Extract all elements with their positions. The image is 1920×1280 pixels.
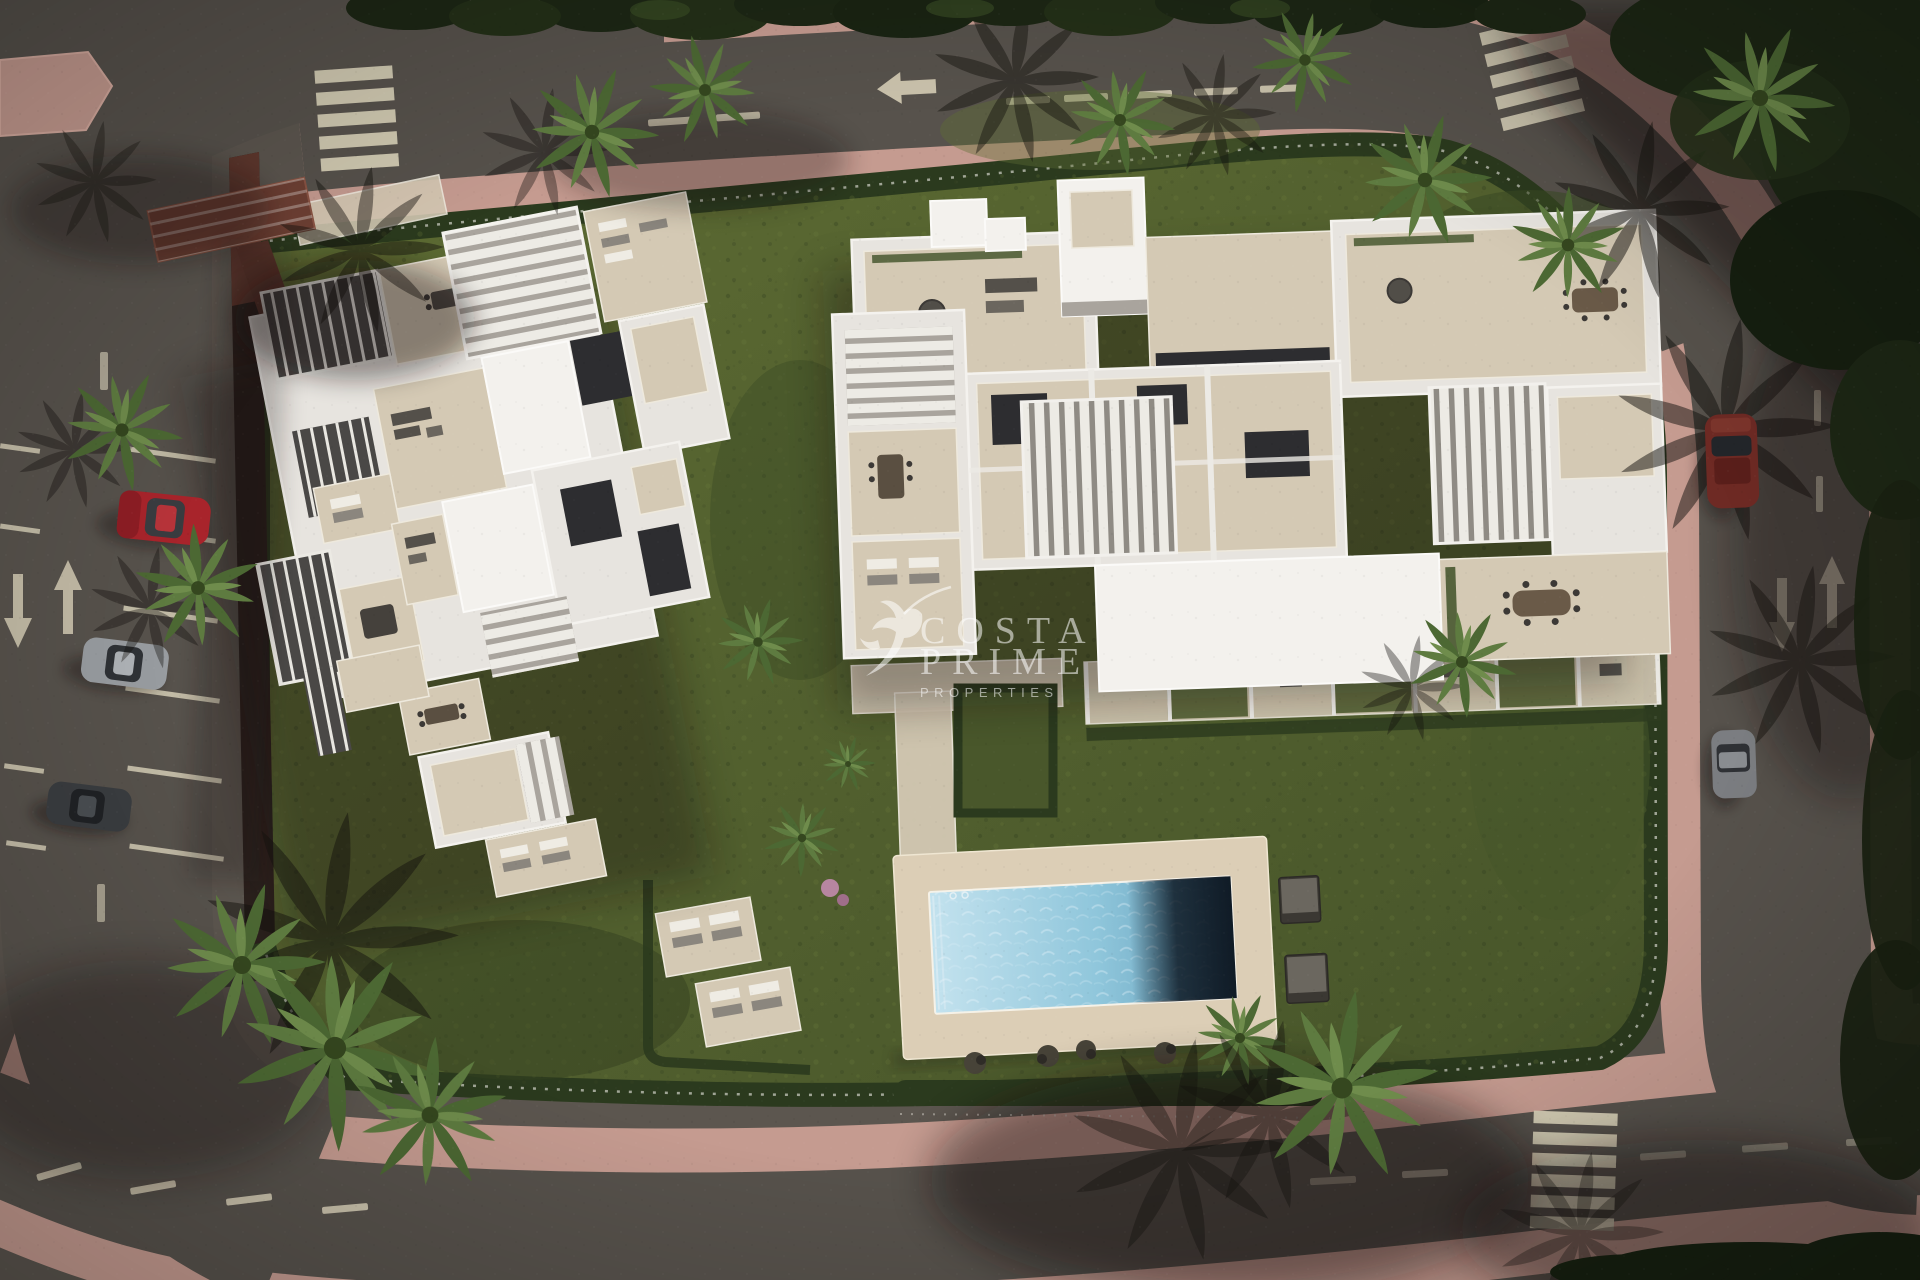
aerial-render-page: COSTA PRIME PROPERTIES (0, 0, 1920, 1280)
aerial-site-render (0, 0, 1920, 1280)
